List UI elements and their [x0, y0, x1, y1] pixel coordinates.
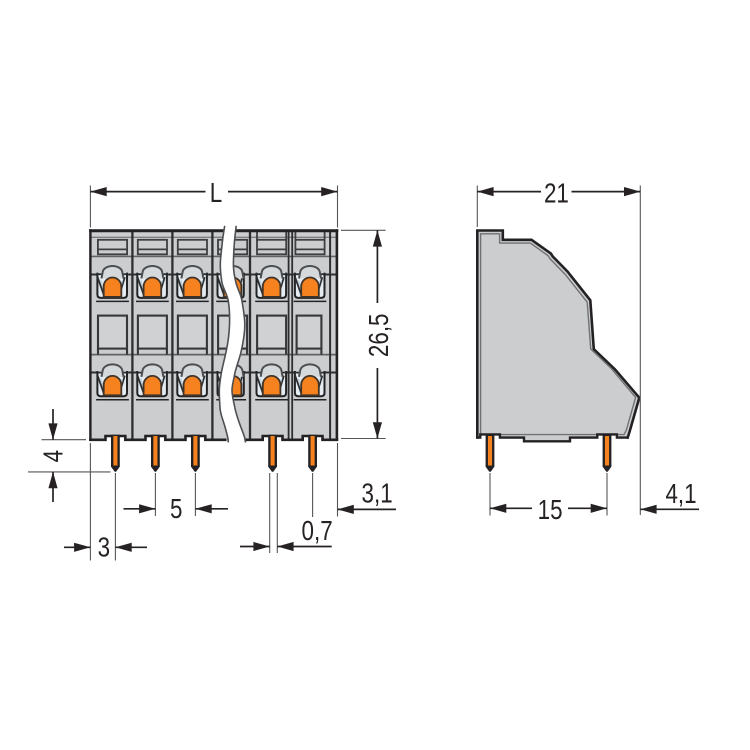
svg-text:5: 5: [170, 494, 182, 525]
svg-text:3: 3: [98, 532, 110, 563]
svg-text:15: 15: [538, 495, 563, 526]
svg-text:0,7: 0,7: [302, 516, 333, 547]
svg-text:4: 4: [38, 450, 69, 462]
svg-text:21: 21: [544, 178, 569, 209]
svg-text:L: L: [210, 178, 222, 209]
svg-text:26,5: 26,5: [364, 314, 395, 358]
svg-text:4,1: 4,1: [665, 479, 696, 510]
svg-text:3,1: 3,1: [362, 478, 393, 509]
